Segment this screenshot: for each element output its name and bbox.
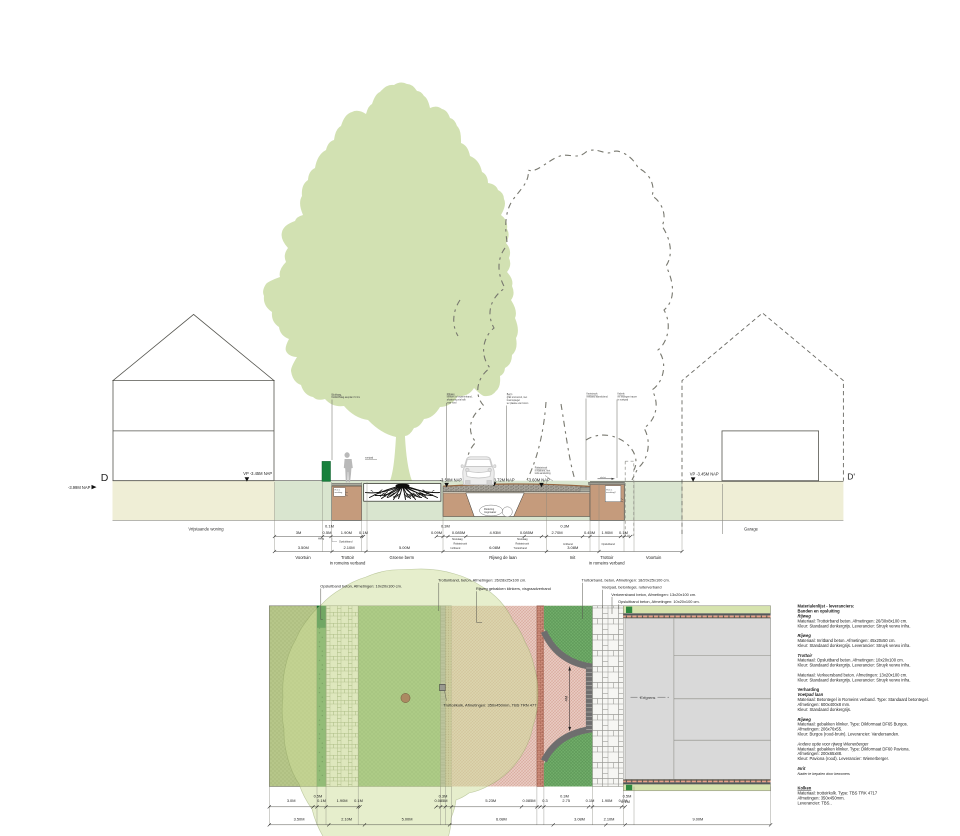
svg-text:5.23M: 5.23M — [485, 798, 496, 803]
svg-text:2.70M: 2.70M — [551, 530, 562, 535]
svg-text:Kleur: Standaard donkergrijs.: Kleur: Standaard donkergrijs. Leverancie… — [798, 623, 911, 628]
svg-text:0.085M: 0.085M — [520, 530, 533, 535]
svg-text:Kleur: Standaard donkergrijs.: Kleur: Standaard donkergrijs. Leverancie… — [798, 677, 911, 682]
svg-text:Berm: Berm — [507, 393, 513, 396]
svg-text:Voortuin: Voortuin — [646, 555, 662, 560]
svg-text:2.10M: 2.10M — [343, 545, 354, 550]
svg-text:1.90M: 1.90M — [602, 798, 613, 803]
svg-text:Trottoirband: Trottoirband — [514, 547, 528, 550]
svg-text:D: D — [101, 472, 109, 484]
svg-text:Trottoirband, beton, Afmetinge: Trottoirband, beton, Afmetingen: 18/20x2… — [582, 578, 670, 583]
svg-text:Rijweg de laan: Rijweg de laan — [489, 555, 517, 560]
svg-text:4M: 4M — [564, 696, 569, 702]
svg-text:2.10M: 2.10M — [604, 816, 615, 821]
svg-text:0.5M: 0.5M — [623, 793, 632, 798]
svg-text:0.3M: 0.3M — [439, 793, 448, 798]
svg-text:naar riool: naar riool — [447, 402, 457, 405]
svg-text:Garage: Garage — [744, 527, 759, 532]
svg-text:Inritband: Inritband — [563, 543, 573, 546]
svg-text:0.45M: 0.45M — [584, 530, 595, 535]
svg-text:2.10M: 2.10M — [341, 816, 352, 821]
svg-text:-3.58M NAP: -3.58M NAP — [440, 477, 463, 482]
svg-text:3.08M: 3.08M — [574, 816, 585, 821]
svg-text:5.00M: 5.00M — [399, 545, 410, 550]
svg-text:Erfgrens: Erfgrens — [640, 695, 655, 700]
svg-text:6.08M: 6.08M — [496, 816, 507, 821]
svg-text:Rabatstrook: Rabatstrook — [454, 543, 468, 546]
svg-text:-3.60M NAP: -3.60M NAP — [527, 477, 550, 482]
svg-text:afschot: afschot — [600, 476, 606, 479]
svg-text:klinkers in keperverband,: klinkers in keperverband, — [447, 396, 473, 399]
svg-text:0.5M: 0.5M — [314, 793, 323, 798]
svg-text:inrichting?: inrichting? — [606, 491, 616, 494]
svg-text:-3.72M NAP: -3.72M NAP — [492, 477, 515, 482]
svg-text:Vrijstaande woning: Vrijstaande woning — [188, 527, 224, 532]
svg-text:kolk aansluiting: kolk aansluiting — [535, 472, 551, 475]
svg-text:2.75: 2.75 — [562, 798, 570, 803]
svg-text:Kleur: Standaard donkergrijs.: Kleur: Standaard donkergrijs. Leverancie… — [798, 663, 911, 668]
svg-text:Voortuin: Voortuin — [295, 555, 311, 560]
svg-text:Opsluitband: Opsluitband — [602, 543, 616, 546]
svg-text:/regnwater: /regnwater — [484, 510, 496, 514]
svg-text:D': D' — [847, 472, 855, 482]
svg-text:Kleur: Paviona (rood). Leveran: Kleur: Paviona (rood). Leverancier: Wien… — [798, 756, 889, 761]
svg-text:0.1M: 0.1M — [325, 524, 334, 529]
svg-text:Rabatstrook: Rabatstrook — [516, 543, 530, 546]
svg-text:0.5M: 0.5M — [323, 530, 332, 535]
svg-text:Streklaag: Streklaag — [517, 538, 528, 541]
svg-text:0.3: 0.3 — [542, 798, 547, 803]
svg-text:0.1M: 0.1M — [586, 798, 595, 803]
svg-text:Trottoir: Trottoir — [341, 555, 355, 560]
svg-text:0.085M: 0.085M — [435, 798, 448, 803]
svg-text:Opsluitband beton, Afmetingen:: Opsluitband beton, Afmetingen: 10x20x100… — [320, 583, 402, 588]
svg-text:0.09M: 0.09M — [431, 530, 442, 535]
svg-text:3M: 3M — [296, 530, 302, 535]
svg-text:en leidingen tracee: en leidingen tracee — [618, 396, 638, 399]
svg-text:Groene berm: Groene berm — [389, 555, 414, 560]
svg-text:gras omzoomd, met: gras omzoomd, met — [507, 396, 528, 399]
svg-text:0.1M: 0.1M — [621, 799, 630, 804]
svg-text:Leverancier: TBS..: Leverancier: TBS.. — [798, 800, 832, 805]
svg-text:Streklaag: Streklaag — [452, 538, 463, 541]
svg-text:0.1M: 0.1M — [619, 530, 628, 535]
svg-text:Opsluitband beton, Afmetingen:: Opsluitband beton, Afmetingen: 10x20x100… — [618, 599, 700, 604]
svg-text:3.0M: 3.0M — [287, 798, 296, 803]
svg-text:Init: Init — [570, 555, 576, 560]
svg-text:0.085M: 0.085M — [452, 530, 465, 535]
svg-text:Nader te bepalen door bewoners: Nader te bepalen door bewoners — [798, 772, 851, 776]
svg-text:Voetpad, betontegel, ruiterver: Voetpad, betontegel, ruiterverband — [602, 585, 662, 590]
svg-text:Kleur: Standaard donkergrijs.: Kleur: Standaard donkergrijs. — [798, 707, 852, 712]
svg-text:1.90M: 1.90M — [341, 530, 352, 535]
svg-text:0.3M: 0.3M — [560, 793, 569, 798]
svg-text:5.00M: 5.00M — [402, 816, 413, 821]
svg-text:3.50M: 3.50M — [294, 816, 305, 821]
svg-text:VP -3.45M NAP: VP -3.45M NAP — [243, 471, 272, 476]
svg-text:Rijweg gebakken klinkers, visg: Rijweg gebakken klinkers, visgraadverban… — [476, 586, 551, 591]
svg-text:1.90M: 1.90M — [601, 530, 612, 535]
svg-text:-3.99M NAP: -3.99M NAP — [68, 485, 91, 490]
svg-text:Kantstrook: Kantstrook — [587, 393, 599, 396]
svg-text:0.3M: 0.3M — [560, 524, 569, 529]
svg-text:0.1M: 0.1M — [354, 798, 363, 803]
svg-text:0.085M: 0.085M — [523, 798, 536, 803]
svg-text:beukenhaag aanplant h=1m: beukenhaag aanplant h=1m — [332, 396, 361, 399]
svg-text:Verkeersband beton, Afmetingen: Verkeersband beton, Afmetingen: 13x20x10… — [611, 592, 696, 597]
svg-text:6.08M: 6.08M — [489, 545, 500, 550]
svg-text:Kleur: Standaard donkergrijs.: Kleur: Standaard donkergrijs. Leverancie… — [798, 643, 911, 648]
svg-text:in romeins verband: in romeins verband — [330, 561, 366, 566]
svg-text:ter plaatse van boom: ter plaatse van boom — [507, 402, 529, 405]
svg-text:Heeg: Heeg — [318, 538, 325, 541]
svg-text:9.00M: 9.00M — [692, 816, 703, 821]
svg-text:Kleur: Burgos (rood-bruin). Le: Kleur: Burgos (rood-bruin). Leverancier:… — [798, 732, 900, 737]
svg-text:afwatering via kolk: afwatering via kolk — [447, 399, 467, 402]
svg-text:Inritband: Inritband — [451, 547, 461, 550]
svg-text:in klinkers, met: in klinkers, met — [535, 469, 551, 472]
svg-text:Trottoir: Trottoir — [600, 555, 614, 560]
svg-text:Rabatstrook: Rabatstrook — [535, 467, 548, 470]
svg-text:in romeins verband: in romeins verband — [589, 561, 625, 566]
svg-text:Opsluitband: Opsluitband — [339, 541, 353, 544]
svg-text:inrichting: inrichting — [335, 491, 343, 494]
svg-text:VP -3.45M NAP: VP -3.45M NAP — [690, 472, 719, 477]
svg-text:in voetpad: in voetpad — [618, 398, 629, 401]
svg-text:0.1M: 0.1M — [317, 798, 326, 803]
svg-text:Trottoirkolk, Afmetingen: 350x: Trottoirkolk, Afmetingen: 350x450mm, TBS… — [443, 702, 537, 707]
svg-text:voetpad: voetpad — [365, 456, 374, 459]
svg-text:boomspiegel: boomspiegel — [507, 400, 521, 402]
svg-text:Inrit: Inrit — [798, 766, 806, 771]
svg-text:0.1M: 0.1M — [359, 530, 368, 535]
svg-text:4.93M: 4.93M — [489, 530, 500, 535]
svg-text:Trottoirband, beton, Afmetinge: Trottoirband, beton, Afmetingen: 26/28x2… — [438, 578, 526, 583]
svg-text:inritband aansluitend: inritband aansluitend — [587, 396, 609, 399]
svg-text:1.90M: 1.90M — [337, 798, 348, 803]
svg-text:0.3M: 0.3M — [441, 524, 450, 529]
svg-text:3.50M: 3.50M — [298, 545, 309, 550]
